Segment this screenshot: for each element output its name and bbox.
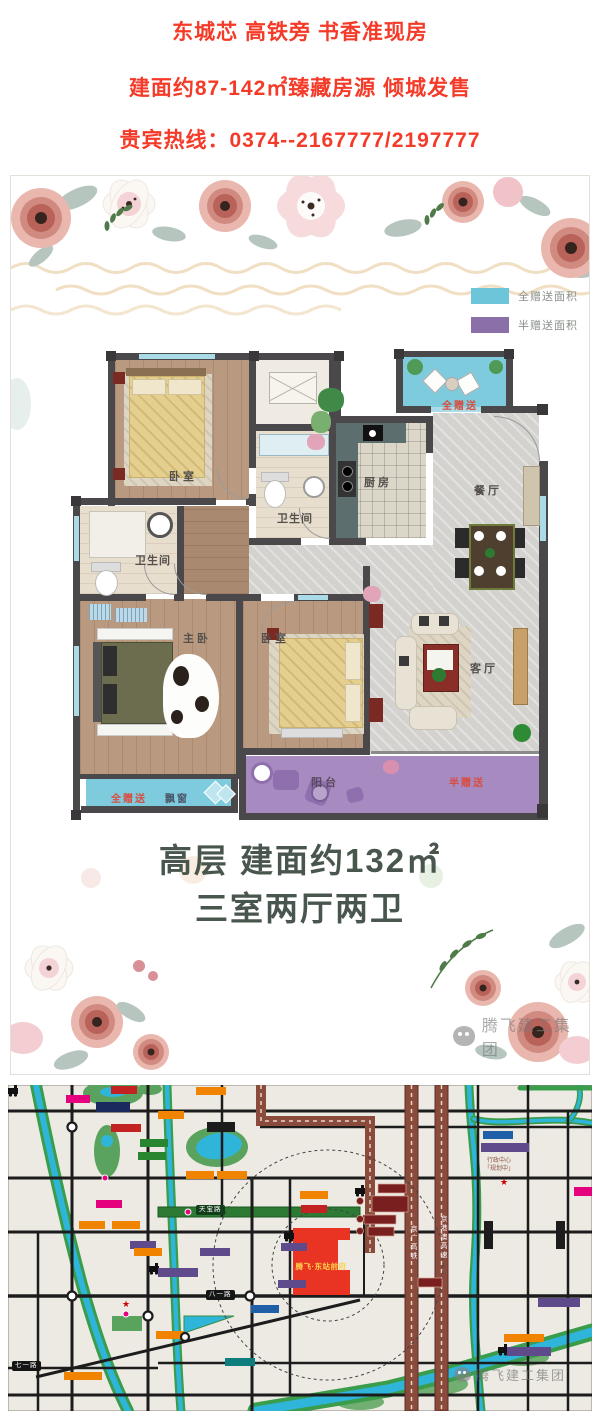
legend-full-gift-swatch (471, 288, 509, 304)
label-bedroom-top: 卧室 (151, 468, 215, 484)
kitchen-sink (369, 430, 376, 437)
washing-machine (251, 762, 273, 784)
table (445, 377, 459, 391)
label-living: 客厅 (459, 660, 509, 676)
bench (97, 628, 173, 640)
legend-half-gift-label: 半赠送面积 (518, 317, 578, 333)
centerpiece (485, 548, 495, 558)
admin-center-line2: 「规划中」 (484, 1166, 514, 1172)
cushion (419, 616, 429, 626)
plant (489, 360, 503, 374)
plate (496, 566, 506, 576)
headboard (93, 642, 101, 722)
label-balcony: 阳台 (303, 774, 347, 790)
label-bedroom-middle: 卧室 (251, 630, 299, 646)
plant (407, 359, 423, 375)
plant (432, 668, 446, 682)
toilet (95, 570, 118, 596)
flowers (363, 586, 381, 602)
header-line3: 贵宾热线：0374--2167777/2197777 (0, 124, 600, 154)
cabinet (513, 628, 528, 705)
label-bay-gift: 全赠送 (103, 790, 155, 805)
cowhide-rug (173, 666, 189, 686)
balcony-chair (273, 770, 299, 790)
window (298, 595, 328, 600)
toilet (264, 480, 286, 508)
sofa (409, 706, 457, 730)
chair (455, 528, 469, 548)
wechat-icon (453, 1026, 475, 1046)
map-watermark-text: 腾飞建工集团 (476, 1365, 566, 1384)
label-master: 主卧 (173, 630, 221, 646)
road-label-bayi: 八一路 (206, 1290, 235, 1300)
plant (318, 388, 344, 412)
caption-layout: 三室两厅两卫 (11, 882, 589, 930)
basin (303, 476, 325, 498)
window (74, 646, 79, 716)
furniture (269, 372, 317, 404)
floorplan-image: 全赠送面积 半赠送面积 (10, 175, 590, 1075)
furniture (89, 604, 111, 620)
window (540, 496, 546, 541)
basin (147, 512, 173, 538)
railway-label: 京广高铁 (405, 1225, 417, 1261)
nightstand (113, 372, 125, 384)
label-balcony-half-gift: 半赠送 (439, 774, 495, 789)
plant (311, 411, 331, 433)
label-dining: 餐厅 (463, 482, 513, 498)
wechat-icon (454, 1367, 471, 1382)
flowers (307, 434, 325, 450)
svg-text:★: ★ (122, 1299, 130, 1309)
furniture (115, 608, 147, 622)
expressway-label: 京港澳高速 (435, 1215, 447, 1260)
plate (474, 531, 484, 541)
legend-half-gift: 半赠送面积 (471, 317, 578, 333)
map-watermark: 腾飞建工集团 (454, 1365, 566, 1384)
hall-marble-floor (249, 545, 433, 594)
cushion (439, 616, 449, 626)
admin-center-label: 行政中心 「规划中」 (476, 1157, 522, 1173)
svg-text:★: ★ (500, 1177, 508, 1187)
window (74, 516, 79, 561)
bench (97, 724, 173, 736)
road-label-tianbao: 天宝路 (196, 1205, 225, 1215)
pillow (103, 646, 117, 676)
header-line1: 东城芯 高铁旁 书香准现房 (0, 16, 600, 46)
tv-wall (369, 698, 383, 722)
legend-half-gift-swatch (471, 317, 509, 333)
tv-wall (369, 604, 383, 628)
pillow (103, 684, 117, 714)
chair (455, 558, 469, 578)
header-line2: 建面约87-142㎡臻藏房源 倾城发售 (0, 72, 600, 102)
label-kitchen: 厨房 (349, 474, 407, 490)
legend-full-gift: 全赠送面积 (471, 288, 578, 304)
watermark: 腾飞建工集团 (453, 1012, 589, 1060)
admin-center-line1: 行政中心 (487, 1158, 511, 1164)
sideboard (523, 466, 540, 526)
plant (513, 724, 531, 742)
window (139, 354, 215, 359)
cowhide-rug (171, 710, 183, 724)
cowhide-rug (195, 696, 209, 712)
cowhide-rug (163, 654, 219, 738)
road-label-qiyi: 七一路 (12, 1361, 41, 1371)
flowers (383, 760, 399, 774)
legend-full-gift-label: 全赠送面积 (518, 288, 578, 304)
watermark-text: 腾飞建工集团 (482, 1012, 589, 1060)
coffee-table (427, 650, 453, 670)
map-canvas: ★ ★ (8, 1085, 592, 1411)
plate (496, 531, 506, 541)
caption-area: 高层 建面约132㎡ (11, 834, 589, 882)
label-terrace-gift: 全赠送 (429, 397, 491, 412)
label-bathroom-left: 卫生间 (121, 552, 185, 568)
nightstand (113, 468, 125, 480)
plate (474, 566, 484, 576)
shower (89, 511, 146, 558)
label-bay-window: 飘窗 (157, 790, 197, 805)
sofa (395, 636, 417, 710)
location-map: ★ ★ 腾飞·东站前府 京广高铁 京港澳高速 八一路 七一路 天宝路 行政中心 … (8, 1085, 592, 1411)
bench (281, 728, 343, 738)
label-bathroom-top: 卫生间 (263, 510, 327, 526)
project-label: 腾飞·东站前府 (292, 1261, 350, 1272)
furniture (126, 368, 206, 376)
cushion (399, 656, 409, 666)
